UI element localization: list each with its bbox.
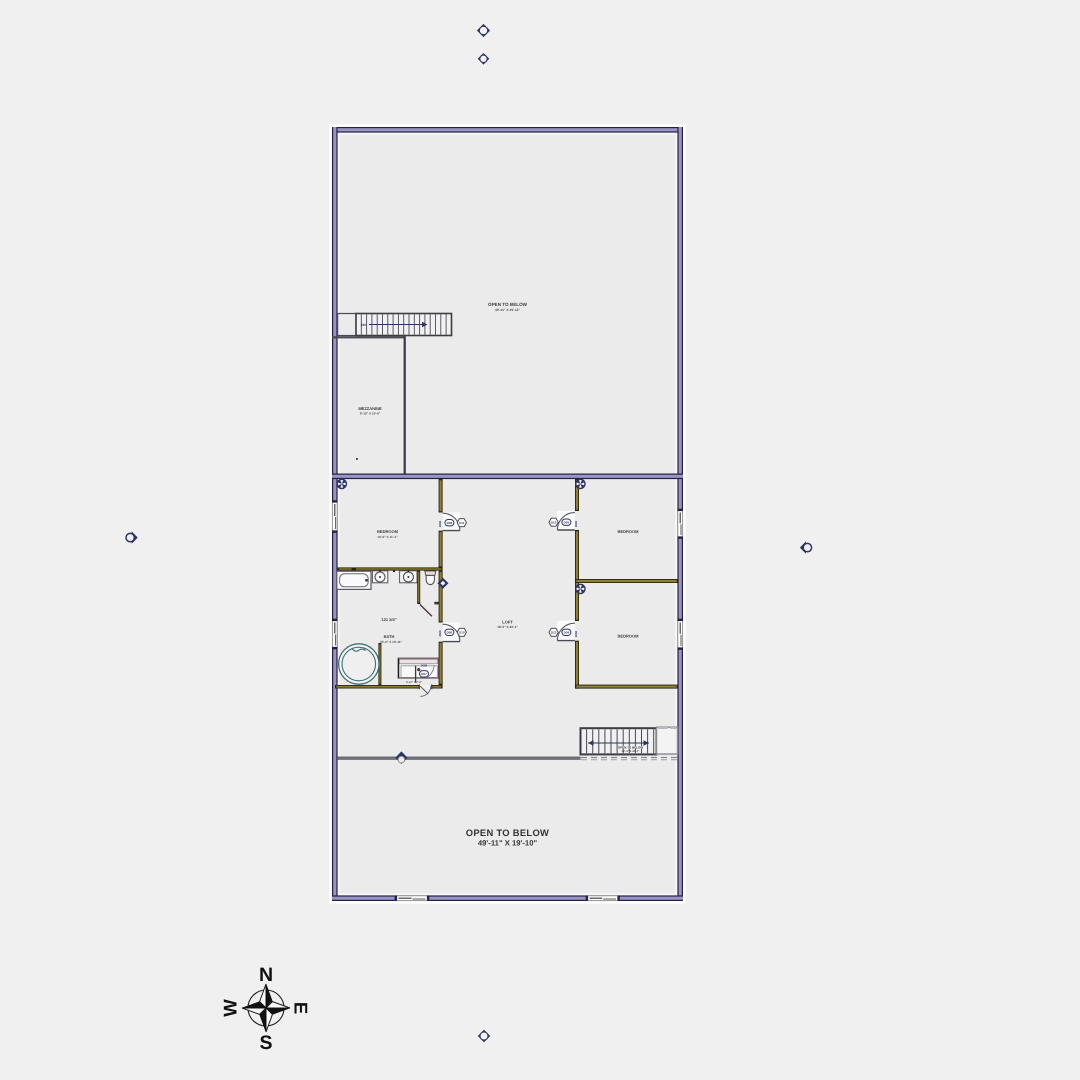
svg-text:5'-10" X 19'-6": 5'-10" X 19'-6" <box>360 412 381 416</box>
svg-text:D12: D12 <box>551 521 557 525</box>
svg-text:18'-5" X 43'-1": 18'-5" X 43'-1" <box>497 625 518 629</box>
svg-text:D07: D07 <box>421 672 427 676</box>
svg-text:D06: D06 <box>447 631 453 635</box>
svg-text:D10: D10 <box>459 631 465 635</box>
svg-text:49'-11" X 19'-10": 49'-11" X 19'-10" <box>478 838 538 847</box>
svg-text:D05: D05 <box>564 521 570 525</box>
svg-text:2668: 2668 <box>421 664 428 668</box>
svg-text:BATH: BATH <box>384 634 395 639</box>
svg-text:15'-0" X 10'-11": 15'-0" X 10'-11" <box>380 640 403 644</box>
svg-text:BEDROOM: BEDROOM <box>377 529 399 534</box>
svg-text:2668: 2668 <box>574 630 578 637</box>
svg-text:BEDROOM: BEDROOM <box>618 529 640 534</box>
svg-text:W: W <box>219 999 240 1017</box>
svg-text:N: N <box>259 964 273 986</box>
svg-text:121 3/4": 121 3/4" <box>381 617 396 622</box>
svg-text:MEZZANINE: MEZZANINE <box>358 406 382 411</box>
svg-text:E: E <box>291 1002 312 1014</box>
svg-text:2668: 2668 <box>574 520 578 527</box>
svg-text:49'-4" X 42'-7": 49'-4" X 42'-7" <box>622 750 641 753</box>
svg-text:S: S <box>259 1032 272 1054</box>
svg-text:D08: D08 <box>447 521 453 525</box>
svg-text:D11: D11 <box>459 521 465 525</box>
svg-text:OPEN TO BELOW: OPEN TO BELOW <box>466 827 549 838</box>
svg-text:BEDROOM: BEDROOM <box>618 634 640 639</box>
svg-text:OPEN TO BELOW: OPEN TO BELOW <box>488 302 528 307</box>
svg-text:49'-11" X 49'-11": 49'-11" X 49'-11" <box>495 308 521 312</box>
svg-text:2668: 2668 <box>438 520 442 527</box>
svg-text:D13: D13 <box>551 631 557 635</box>
svg-text:2668: 2668 <box>438 630 442 637</box>
svg-text:LOFT: LOFT <box>502 620 513 625</box>
svg-text:DN: DN <box>361 323 366 327</box>
svg-text:5'-10" X 2'-8": 5'-10" X 2'-8" <box>406 681 423 684</box>
svg-text:10'-0" X 11'-1": 10'-0" X 11'-1" <box>377 535 398 539</box>
svg-text:D04: D04 <box>564 631 570 635</box>
svg-text:OPEN TO BELOW: OPEN TO BELOW <box>618 745 644 749</box>
